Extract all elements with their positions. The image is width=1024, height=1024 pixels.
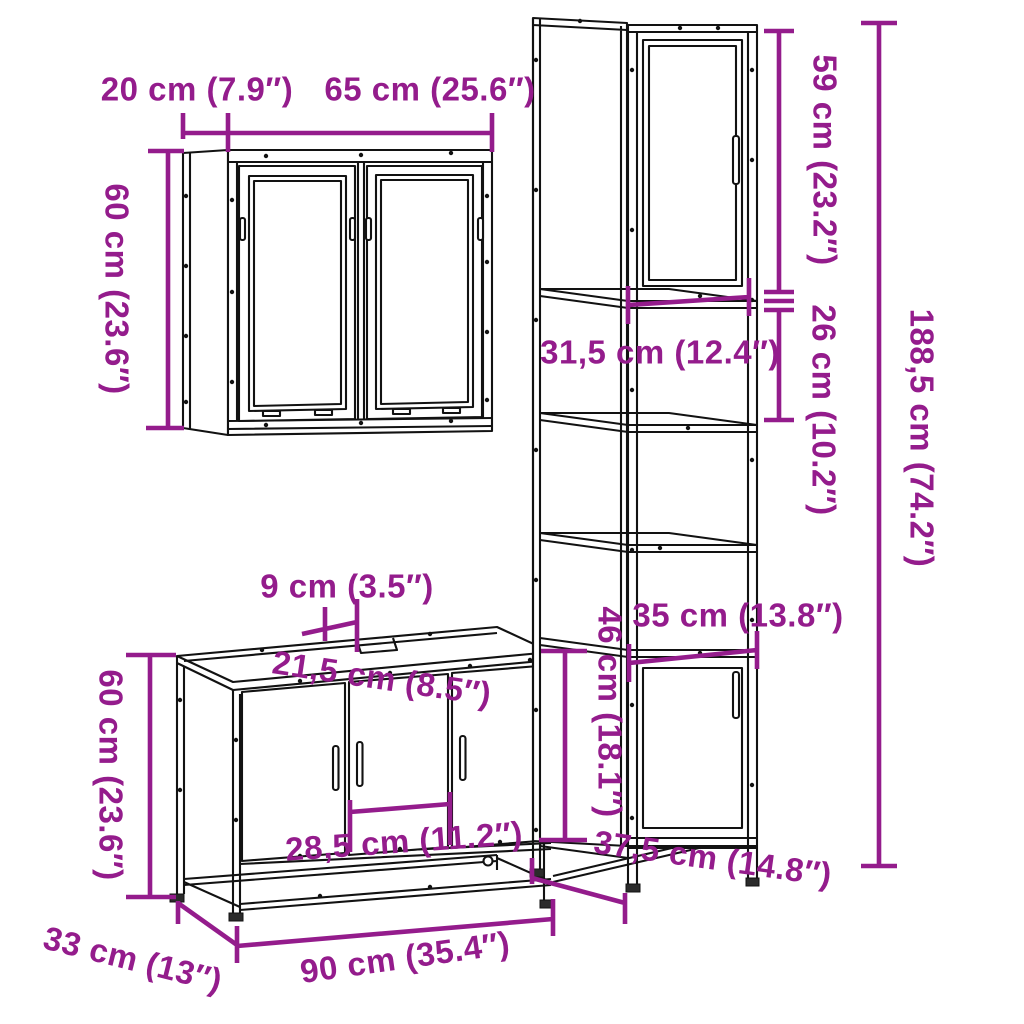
door-hinge (240, 218, 245, 240)
tall-total-height-label: 188,5 cm (74.2″) (904, 309, 941, 568)
door-handle (733, 672, 739, 718)
dimension-diagram-page: 20 cm (7.9″) 65 cm (25.6″) 60 cm (23.6″)… (0, 0, 1024, 1024)
door-handle (357, 742, 363, 786)
tall-upper-door-height-label: 59 cm (23.2″) (807, 54, 844, 265)
mirror-depth-label: 20 cm (7.9″) (101, 71, 293, 108)
tall-inner-width-label: 31,5 cm (12.4″) (540, 334, 780, 371)
door-handle (366, 218, 371, 240)
door-hinge (478, 218, 483, 240)
mirror-height-label: 60 cm (23.6″) (99, 183, 136, 394)
tall-lower-door-width-label: 35 cm (13.8″) (632, 597, 843, 634)
tall-open-compartment-height-label: 26 cm (10.2″) (806, 304, 843, 515)
door-handle (333, 746, 339, 790)
tall-lower-section-height-label: 46 cm (18.1″) (592, 606, 629, 817)
door-handle (460, 736, 466, 780)
sink-depth-label: 33 cm (13″) (40, 919, 226, 999)
door-handle (350, 218, 355, 240)
mirror-cabinet-drawing (183, 150, 492, 435)
sink-cutout-width-label: 9 cm (3.5″) (260, 568, 434, 605)
mirror-width-label: 65 cm (25.6″) (324, 71, 535, 108)
door-handle (733, 136, 739, 184)
furniture-dimension-diagram: 20 cm (7.9″) 65 cm (25.6″) 60 cm (23.6″)… (0, 0, 1024, 1024)
sink-height-label: 60 cm (23.6″) (93, 669, 130, 880)
